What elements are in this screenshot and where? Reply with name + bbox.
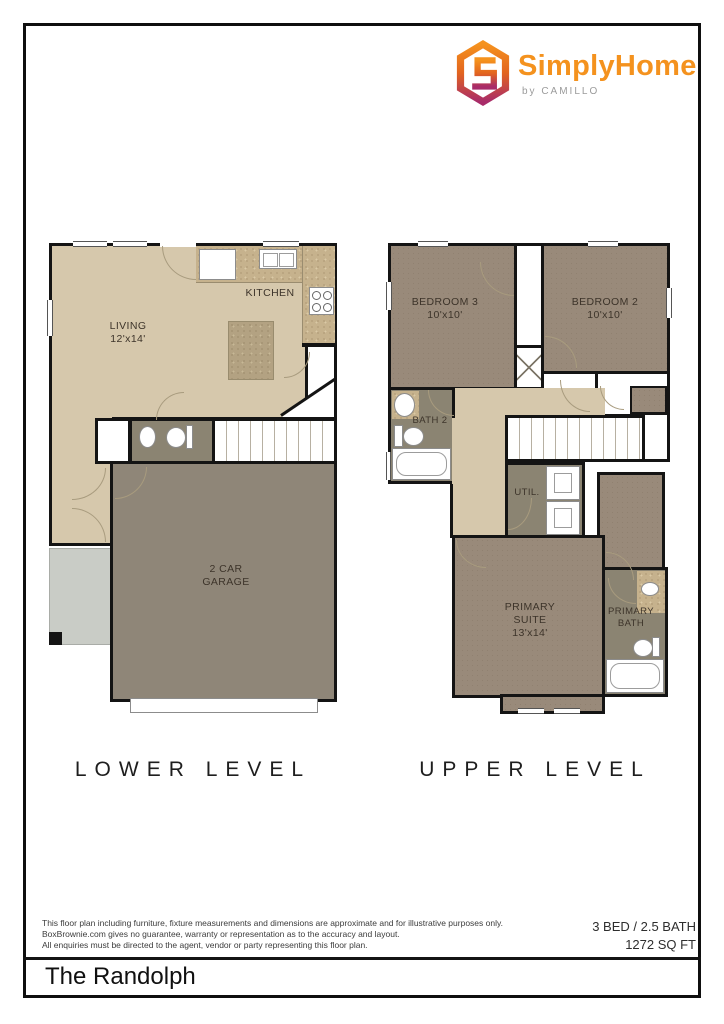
- range-stove: [309, 287, 334, 315]
- square-footage: 1272 SQ FT: [500, 936, 696, 954]
- disclaimer-line: This floor plan including furniture, fix…: [42, 918, 522, 929]
- bedroom3-label: BEDROOM 3 10'x10': [405, 296, 485, 322]
- refrigerator: [199, 249, 236, 280]
- floor-plan-sheet: SimplyHome by CAMILLO: [0, 0, 724, 1024]
- powder-sink: [139, 426, 156, 448]
- washer: [546, 466, 580, 500]
- primary-bath-tub: [606, 659, 664, 693]
- entry-closet: [95, 418, 131, 464]
- window: [386, 282, 392, 310]
- primary-bath-sink: [641, 582, 659, 596]
- brand-tagline: by CAMILLO: [522, 86, 599, 97]
- window: [73, 241, 107, 247]
- bath2-tub: [392, 448, 451, 480]
- util-label: UTIL.: [509, 487, 545, 499]
- window: [518, 708, 544, 714]
- window: [666, 288, 672, 318]
- plan-title: The Randolph: [45, 963, 196, 991]
- stairs-lower: [212, 418, 337, 464]
- center-closet: [514, 243, 544, 390]
- bath2-sink: [394, 393, 415, 417]
- window: [554, 708, 580, 714]
- specs: 3 BED / 2.5 BATH 1272 SQ FT: [500, 918, 696, 954]
- window: [386, 452, 391, 480]
- porch-post: [49, 632, 62, 645]
- garage-label: 2 CAR GARAGE: [187, 563, 265, 589]
- beds-baths: 3 BED / 2.5 BATH: [500, 918, 696, 936]
- window: [113, 241, 147, 247]
- bedroom2-label: BEDROOM 2 10'x10': [565, 296, 645, 322]
- bath2-toilet: [403, 427, 424, 446]
- living-label: LIVING 12'x14': [88, 320, 168, 346]
- upper-hall-column: [452, 418, 505, 538]
- upper-level-caption: UPPER LEVEL: [400, 758, 670, 782]
- kitchen-island: [228, 321, 274, 380]
- primary-suite-label: PRIMARY SUITE 13'x14': [480, 601, 580, 640]
- wall-segment: [667, 243, 670, 462]
- bedroom2-closet: [630, 386, 667, 414]
- patio: [49, 548, 113, 645]
- linen-closet-x: [517, 345, 541, 387]
- disclaimer-line: All enquiries must be directed to the ag…: [42, 940, 522, 951]
- disclaimer-line: BoxBrownie.com gives no guarantee, warra…: [42, 929, 522, 940]
- kitchen-label: KITCHEN: [234, 287, 306, 300]
- window: [47, 300, 53, 336]
- disclaimer: This floor plan including furniture, fix…: [42, 918, 522, 950]
- lower-level-caption: LOWER LEVEL: [58, 758, 328, 782]
- bath2-toilet-tank: [394, 425, 403, 447]
- powder-toilet-tank: [186, 425, 193, 449]
- primary-toilet-tank: [652, 637, 660, 657]
- wall-segment: [450, 484, 453, 538]
- window: [263, 241, 299, 247]
- brand-name: SimplyHome: [518, 50, 697, 83]
- window: [588, 241, 618, 247]
- window: [418, 241, 448, 247]
- frame-divider: [23, 957, 701, 960]
- simplyhome-house-icon: [456, 40, 510, 106]
- stairs-upper: [505, 415, 645, 462]
- primary-bath-label: PRIMARY BATH: [600, 606, 662, 630]
- dryer: [546, 501, 580, 535]
- powder-toilet: [166, 427, 186, 448]
- kitchen-sink: [259, 249, 297, 269]
- primary-toilet: [633, 639, 653, 657]
- bath2-label: BATH 2: [404, 415, 456, 427]
- primary-suite-bay: [500, 694, 605, 714]
- garage-door-opening: [130, 698, 318, 713]
